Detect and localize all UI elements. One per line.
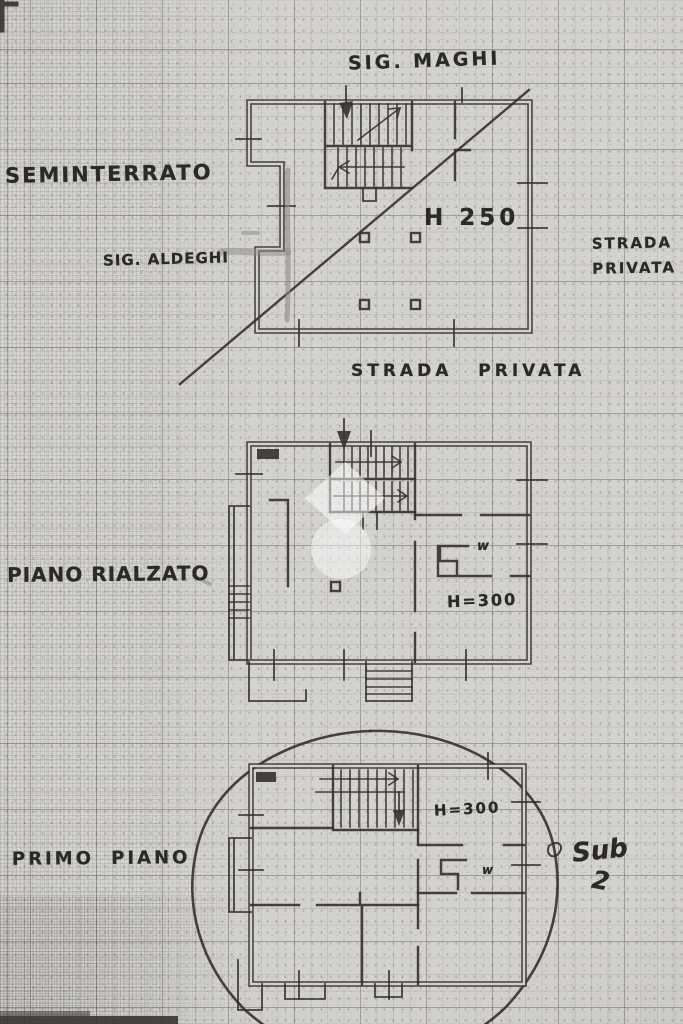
neighbor-annotation: SIG. ALDEGHI — [103, 248, 229, 269]
scan-edge-artifacts — [0, 0, 178, 1024]
floor-label-primo-piano: PRIMO PIANO — [12, 847, 191, 870]
scanned-floorplan-page: SIG. MAGHI SEMINTERRATO SIG. ALDEGHI STR… — [0, 0, 683, 1024]
floor-label-seminterrato: SEMINTERRATO — [5, 160, 213, 188]
floorplan-drawing — [0, 0, 683, 1024]
height-annotation-primo: H=300 — [434, 798, 501, 819]
subunit-annotation-word: Sub — [571, 833, 630, 869]
stair-direction-arrow — [339, 101, 353, 119]
ground-floor-plan — [229, 419, 547, 701]
height-annotation-rialzato: H=300 — [447, 590, 518, 611]
flue-block — [256, 772, 276, 782]
flue-block — [257, 449, 279, 459]
street-label-bottom: STRADA PRIVATA — [351, 361, 585, 381]
first-floor-plan — [229, 753, 540, 1010]
entrance-arrow — [337, 431, 351, 450]
height-annotation-basement: H 250 — [424, 205, 519, 231]
wc-mark-primo: w — [482, 863, 493, 877]
floor-label-piano-rialzato: PIANO RIALZATO — [7, 561, 210, 587]
street-label-right: STRADA PRIVATA — [592, 230, 681, 281]
wc-mark-rialzato: w — [477, 539, 489, 554]
pencil-smudges — [194, 170, 288, 584]
property-boundary-diagonal — [180, 90, 529, 384]
